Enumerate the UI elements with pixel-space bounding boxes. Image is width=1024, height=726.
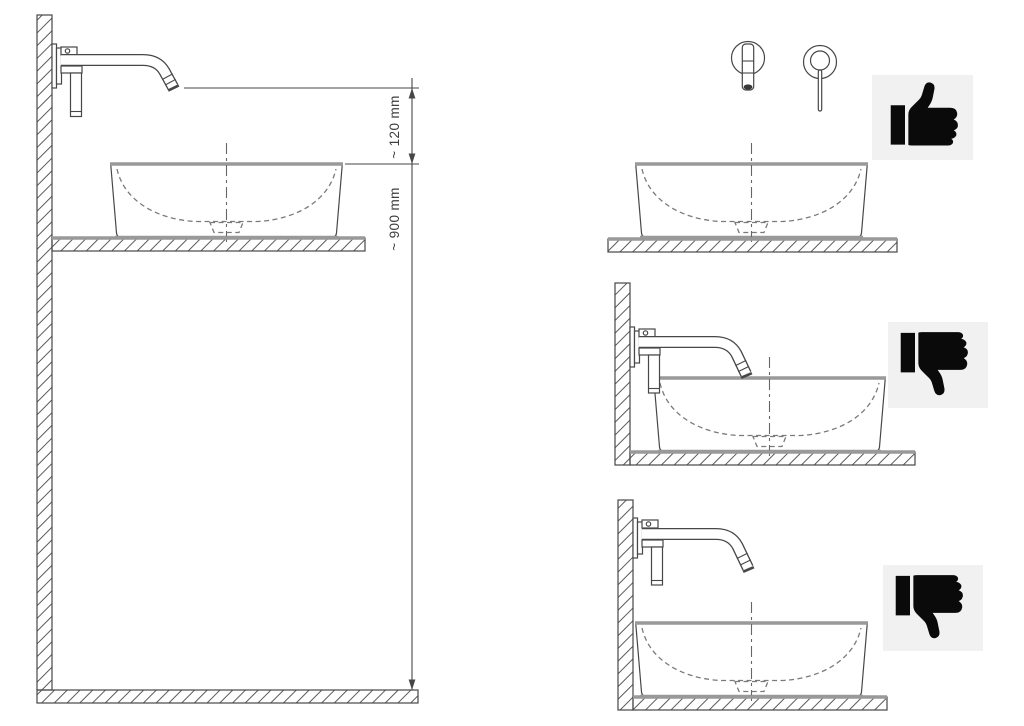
spout-below-rim-incorrect-panel <box>615 283 988 465</box>
approval-badge <box>872 75 973 160</box>
wall-mounted-faucet <box>52 44 179 117</box>
floor-slab <box>37 690 418 703</box>
handle-base <box>61 66 82 73</box>
wall-section <box>618 500 633 710</box>
arrow-down-icon <box>409 154 416 165</box>
faucet-handle-lever <box>649 355 660 393</box>
handle-base <box>639 348 660 355</box>
countertop-slab <box>630 452 915 465</box>
wall-section <box>37 15 52 690</box>
countertop-slab <box>608 239 897 252</box>
faucet-wall-plate <box>52 44 57 88</box>
rejection-badge <box>883 565 983 651</box>
vessel-basin <box>635 602 868 705</box>
handle-hub <box>811 51 830 70</box>
handle-lever <box>818 70 821 111</box>
spout-outlet <box>744 84 753 89</box>
main-elevation-panel: ~ 120 mm ~ 900 mm <box>37 15 419 703</box>
technical-diagram-svg: ~ 120 mm ~ 900 mm <box>0 0 1024 726</box>
handle-base <box>642 540 663 547</box>
countertop-slab <box>52 238 365 251</box>
wall-section <box>615 283 630 465</box>
arrow-down-icon <box>409 680 416 691</box>
vessel-basin <box>653 357 886 460</box>
vessel-basin <box>635 143 868 246</box>
spout-body <box>742 44 753 90</box>
dimension-label-spout-to-rim: ~ 120 mm <box>387 95 402 159</box>
faucet-handle-lever <box>71 73 82 117</box>
front-view-correct-panel <box>608 42 973 253</box>
wall-mounted-faucet <box>633 518 754 585</box>
screw-icon <box>65 49 69 53</box>
screw-icon <box>643 331 647 335</box>
faucet-wall-plate <box>633 518 638 558</box>
rejection-badge <box>888 322 988 408</box>
arrow-up-icon <box>409 88 416 99</box>
faucet-handle-lever <box>652 547 663 585</box>
screw-icon <box>646 522 650 526</box>
dimension-label-rim-to-floor: ~ 900 mm <box>387 187 402 251</box>
spout-front-view <box>732 42 765 91</box>
vessel-basin <box>110 143 343 246</box>
faucet-basin-installation-diagram: ~ 120 mm ~ 900 mm <box>0 0 1024 726</box>
spout-too-close-incorrect-panel <box>618 500 983 710</box>
countertop-slab <box>633 697 887 710</box>
faucet-wall-plate <box>630 327 635 367</box>
handle-front-view <box>804 46 837 112</box>
